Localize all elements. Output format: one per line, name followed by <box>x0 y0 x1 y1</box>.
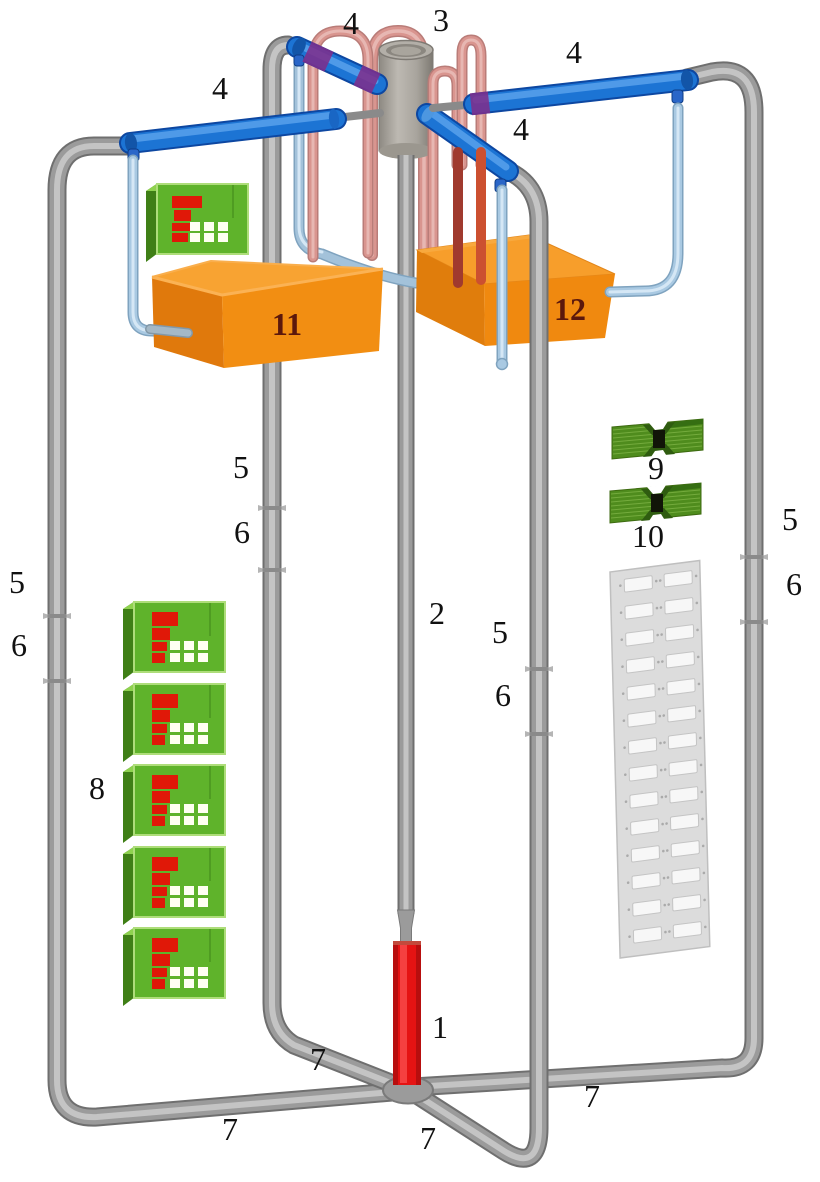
svg-text:7: 7 <box>420 1120 436 1156</box>
svg-text:5: 5 <box>9 564 25 600</box>
svg-text:5: 5 <box>492 614 508 650</box>
svg-text:3: 3 <box>433 2 449 38</box>
svg-text:12: 12 <box>554 291 586 327</box>
svg-text:8: 8 <box>89 770 105 806</box>
svg-text:11: 11 <box>272 306 302 342</box>
svg-text:7: 7 <box>584 1078 600 1114</box>
svg-text:4: 4 <box>212 70 228 106</box>
svg-text:10: 10 <box>632 518 664 554</box>
svg-text:2: 2 <box>429 595 445 631</box>
svg-text:9: 9 <box>648 450 664 486</box>
svg-text:7: 7 <box>310 1041 326 1077</box>
svg-text:6: 6 <box>495 677 511 713</box>
svg-text:4: 4 <box>343 5 359 41</box>
svg-text:1: 1 <box>432 1009 448 1045</box>
svg-text:5: 5 <box>233 449 249 485</box>
svg-text:6: 6 <box>234 514 250 550</box>
svg-text:4: 4 <box>513 111 529 147</box>
svg-text:5: 5 <box>782 501 798 537</box>
svg-text:4: 4 <box>566 34 582 70</box>
svg-text:6: 6 <box>11 627 27 663</box>
svg-text:6: 6 <box>786 566 802 602</box>
svg-text:7: 7 <box>222 1111 238 1147</box>
